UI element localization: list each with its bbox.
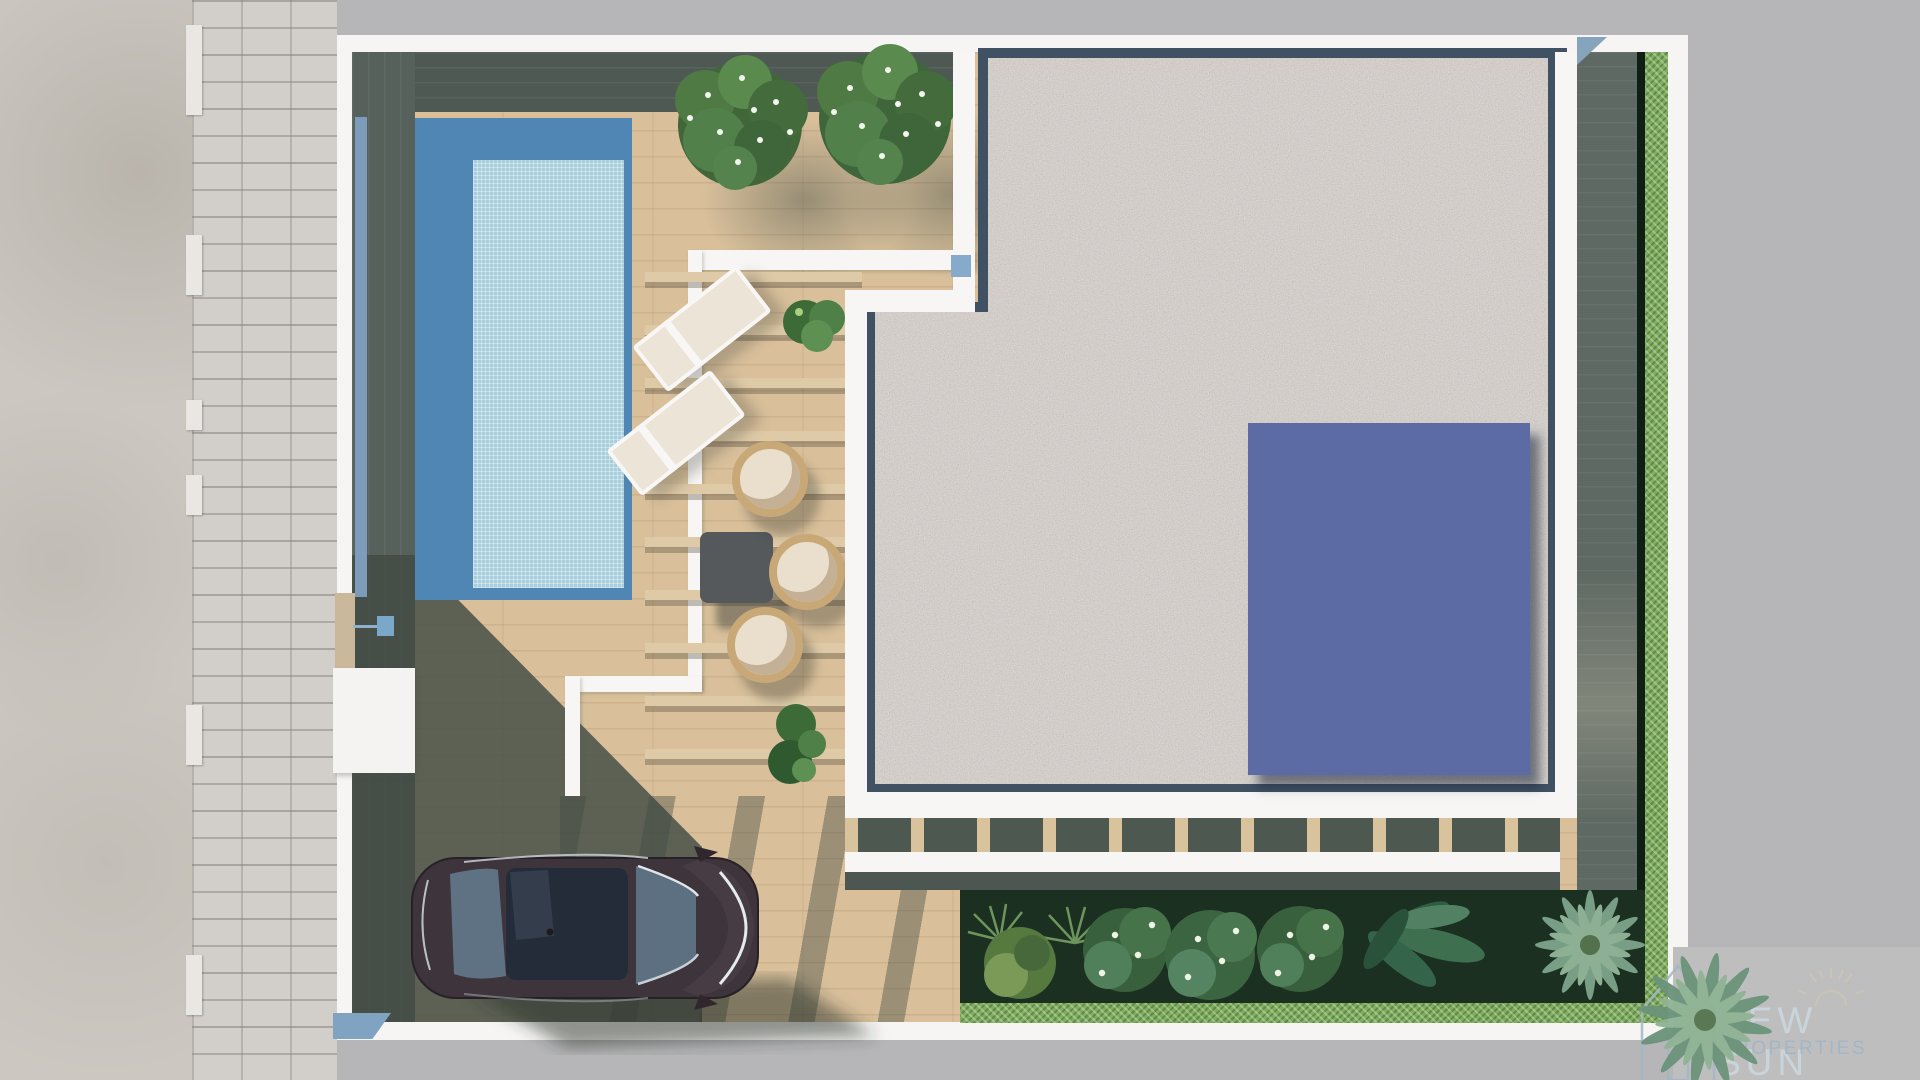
patio-bush — [775, 292, 855, 356]
boundary-pillar — [335, 593, 355, 668]
aerial-villa-render: NEW SUN PROPERTIES — [0, 0, 1920, 1080]
side-wood-strip — [1577, 52, 1637, 890]
wall-pillar-cap — [186, 955, 202, 1015]
hanging-chair — [732, 441, 808, 517]
annex-roof — [333, 668, 415, 773]
hedge-shadow — [1637, 52, 1645, 890]
coffee-table — [700, 532, 773, 603]
parapet-wall — [845, 792, 1560, 818]
paver-wall-strip — [192, 0, 337, 1080]
hanging-chair — [727, 607, 803, 683]
outdoor-shower — [377, 616, 394, 636]
outdoor-shower-arm — [353, 625, 379, 628]
parked-car — [398, 840, 898, 1050]
flowering-tree — [790, 30, 980, 205]
swimming-pool-shallow-area — [473, 160, 624, 588]
parapet-wall — [845, 290, 867, 792]
patio-bush — [760, 700, 840, 792]
solar-panel-array — [1248, 423, 1530, 775]
terrace-wall-top — [688, 250, 975, 270]
car-rear-window — [450, 869, 506, 979]
boundary-wall-accent — [355, 117, 367, 597]
wall-pillar-cap — [186, 705, 202, 765]
wall-pillar-cap — [186, 400, 202, 430]
wall-pillar-cap — [186, 25, 202, 115]
hanging-chair — [769, 534, 845, 610]
roof-drain-accent — [951, 255, 971, 277]
wall-pillar-cap — [186, 235, 202, 295]
palm-tree — [1450, 855, 1920, 1080]
parapet-wall — [1555, 52, 1577, 818]
wall-pillar-cap — [186, 475, 202, 515]
concrete-sidewalk — [0, 0, 192, 1080]
pergola-beam-ends — [845, 818, 1560, 852]
terrace-wall-left-lower — [565, 676, 580, 796]
